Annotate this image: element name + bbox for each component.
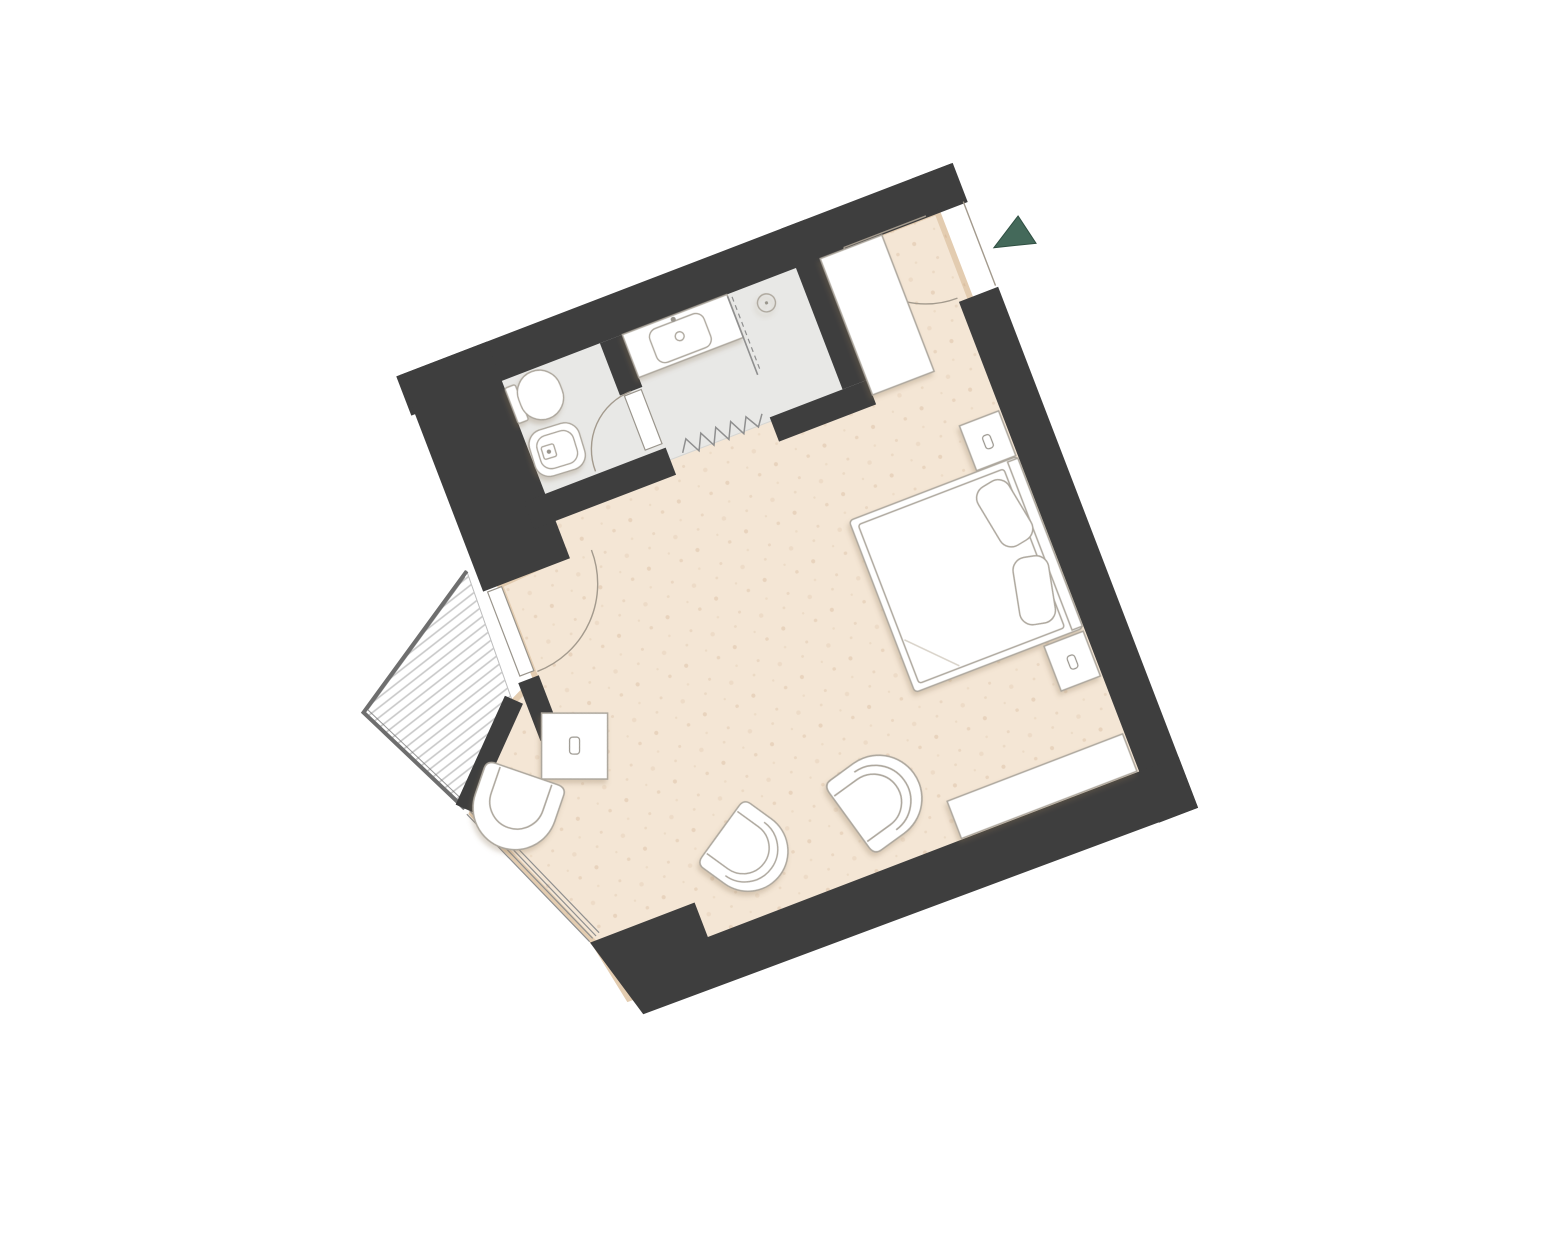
minibar-cube xyxy=(542,713,608,779)
floor-plan-svg xyxy=(0,0,1550,1240)
floor-plan-canvas xyxy=(0,0,1550,1240)
